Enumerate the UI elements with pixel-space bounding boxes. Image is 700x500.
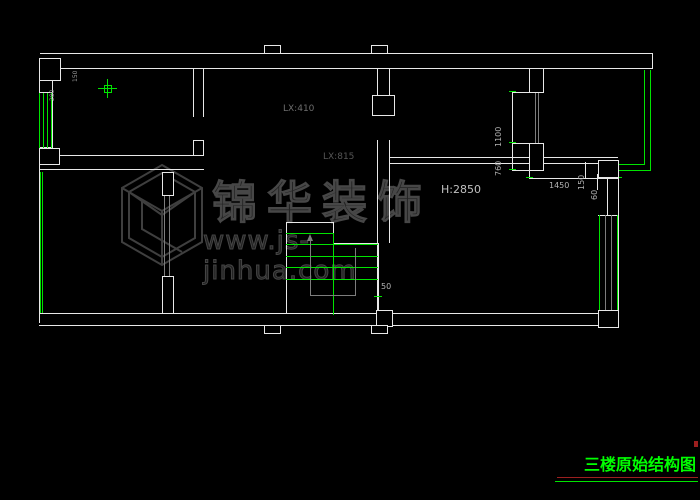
wall-pillar bbox=[371, 45, 388, 54]
wall-line bbox=[598, 215, 618, 216]
wall-line bbox=[39, 169, 204, 170]
opening-label-lx410: LX:410 bbox=[283, 105, 314, 114]
wall-pillar bbox=[598, 310, 619, 328]
opening-line bbox=[169, 196, 170, 276]
cad-drawing-viewport[interactable]: 锦华装饰 www.js-jinhua.com LX:410 LX:815 H:2… bbox=[0, 0, 700, 500]
window-line bbox=[617, 215, 618, 311]
window-line bbox=[599, 215, 600, 311]
wall-pillar bbox=[39, 148, 60, 165]
wall-line bbox=[203, 68, 204, 117]
wall-line bbox=[39, 325, 619, 326]
wall-pillar bbox=[371, 325, 388, 334]
dimension-280: 280 bbox=[50, 90, 56, 101]
dimension-50: 50 bbox=[381, 283, 391, 291]
window-line bbox=[39, 92, 40, 148]
opening-line bbox=[355, 248, 356, 296]
wall-line bbox=[193, 140, 194, 156]
wall-line bbox=[512, 92, 513, 170]
wall-line bbox=[193, 68, 194, 117]
window-line bbox=[286, 244, 378, 245]
dimension-760: 760 bbox=[495, 161, 503, 176]
wall-line bbox=[389, 157, 618, 158]
wall-line bbox=[529, 178, 618, 179]
wall-line bbox=[286, 222, 287, 314]
window-line bbox=[286, 267, 378, 268]
wall-line bbox=[389, 163, 618, 164]
wall-line bbox=[40, 68, 653, 69]
window-line bbox=[509, 142, 516, 143]
wall-pillar bbox=[162, 172, 174, 196]
wall-line bbox=[512, 92, 529, 93]
window-line bbox=[42, 172, 43, 313]
window-line bbox=[333, 233, 334, 315]
opening-line bbox=[310, 295, 356, 296]
opening-label-lx815: LX:815 bbox=[323, 153, 354, 162]
window-line bbox=[286, 279, 378, 280]
window-line bbox=[618, 170, 651, 171]
wall-line bbox=[203, 140, 204, 156]
wall-pillar bbox=[598, 160, 619, 178]
wall-line bbox=[389, 140, 390, 243]
opening-line bbox=[164, 196, 165, 276]
window-line bbox=[47, 92, 48, 148]
wall-line bbox=[193, 140, 204, 141]
wall-line bbox=[512, 170, 529, 171]
wall-pillar bbox=[264, 325, 281, 334]
dimension-150-right: 150 bbox=[578, 175, 586, 190]
opening-line bbox=[310, 240, 311, 296]
wall-line bbox=[618, 160, 619, 328]
wall-line bbox=[512, 143, 529, 144]
window-line bbox=[509, 91, 516, 92]
opening-line bbox=[538, 92, 539, 143]
wall-line bbox=[40, 53, 653, 54]
stair-direction-arrow-icon bbox=[307, 234, 313, 241]
opening-line bbox=[611, 215, 612, 311]
wall-pillar bbox=[162, 276, 174, 314]
window-line bbox=[618, 164, 645, 165]
crosshair-cursor bbox=[104, 85, 112, 93]
window-line bbox=[43, 92, 44, 148]
dimension-150-left: 150 bbox=[73, 71, 79, 82]
wall-pillar bbox=[529, 143, 544, 171]
wall-pillar bbox=[264, 45, 281, 54]
opening-line bbox=[535, 92, 536, 143]
window-line bbox=[40, 172, 41, 313]
window-line bbox=[526, 177, 533, 178]
dimension-60: 60 bbox=[591, 190, 599, 200]
wall-line bbox=[607, 177, 608, 215]
title-corner-mark bbox=[694, 441, 698, 447]
opening-line bbox=[605, 215, 606, 311]
sheet-title: 三楼原始结构图 bbox=[584, 451, 696, 475]
wall-pillar bbox=[39, 58, 61, 81]
window-line bbox=[509, 169, 516, 170]
wall-pillar bbox=[529, 68, 544, 93]
wall-pillar bbox=[372, 95, 395, 116]
dimension-1100: 1100 bbox=[495, 127, 503, 147]
title-underline-green bbox=[555, 481, 698, 482]
window-line bbox=[650, 70, 651, 171]
ceiling-height-label: H:2850 bbox=[441, 184, 481, 195]
wall-line bbox=[39, 155, 204, 156]
window-line bbox=[286, 256, 378, 257]
title-underline-red bbox=[557, 477, 698, 478]
watermark-brand-text: 锦华装饰 bbox=[212, 178, 462, 228]
wall-line bbox=[39, 313, 619, 314]
dimension-1450: 1450 bbox=[549, 182, 569, 190]
wall-line bbox=[378, 243, 379, 311]
wall-line bbox=[652, 53, 653, 69]
window-line bbox=[374, 296, 382, 297]
window-line bbox=[644, 70, 645, 165]
wall-line bbox=[286, 222, 334, 223]
